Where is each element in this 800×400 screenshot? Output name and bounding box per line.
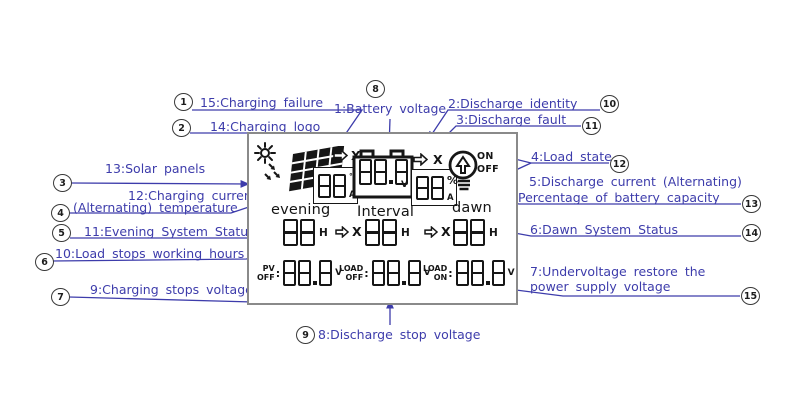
label-load-state: 4:Load state [531, 149, 612, 164]
interval-hours-unit: H [401, 227, 410, 239]
discharge-arrow-icon [413, 153, 428, 166]
label-discharge-identity: 2:Discharge identity [448, 96, 577, 111]
evening-title: evening [271, 202, 330, 218]
discharge-display-digits [415, 176, 445, 200]
label-undervoltage-2: power supply voltage [530, 279, 670, 294]
callout-circle-9: 9 [296, 326, 315, 344]
diagram-canvas: 1 2 3 4 5 6 7 8 9 10 11 12 13 14 15 15:C… [0, 0, 800, 400]
label-load-stops-hours: 10:Load stops working hours [55, 246, 244, 261]
label-battery-voltage: 1:Battery voltage [334, 101, 446, 116]
evening-hours-group: H [282, 219, 328, 246]
callout-circle-7: 7 [51, 288, 70, 306]
lcd-panel: °C A X V X % [247, 132, 518, 305]
label-solar-panels: 13:Solar panels [105, 161, 205, 176]
dawn-title: dawn [452, 200, 492, 216]
callout-circle-6: 6 [35, 253, 54, 271]
dawn-hours-unit: H [489, 227, 498, 239]
load-label-2: LOAD [423, 264, 447, 273]
load-on-text: ON [477, 151, 499, 164]
interval-hours-group: H [364, 219, 410, 246]
label-discharge-stop-voltage: 8:Discharge stop voltage [318, 327, 480, 342]
battery-volt-unit: V [401, 180, 408, 190]
label-charging-failure: 15:Charging failure [200, 95, 323, 110]
pv-off-voltage-digits [282, 260, 333, 286]
load-state-indicator: ON OFF [477, 151, 499, 177]
callout-circle-4: 4 [51, 204, 70, 222]
load-on-label: ON [423, 273, 447, 282]
callout-circle-12: 12 [610, 155, 629, 173]
colon: : [364, 267, 368, 280]
label-evening-status: 11:Evening System Status [84, 224, 255, 239]
leader-solar-panels [71, 183, 249, 184]
label-discharge-current-1: 5:Discharge current (Alternating) [529, 174, 742, 189]
colon: : [448, 267, 452, 280]
charge-display-digits [317, 174, 347, 198]
label-charging-stops-voltage: 9:Charging stops voltage [90, 282, 253, 297]
load-on-voltage-group: LOAD ON : V [423, 260, 515, 286]
load-bulb-icon [446, 149, 480, 195]
interval-indicator: X [335, 224, 362, 239]
interval-x-icon: X [352, 224, 362, 239]
dawn-arrow-icon [424, 226, 438, 238]
load-on-volt-unit: V [508, 268, 515, 278]
callout-circle-10: 10 [600, 95, 619, 113]
interval-hours-digits [364, 219, 398, 246]
discharge-indicator: X [413, 152, 443, 167]
callout-circle-15: 15 [741, 287, 760, 305]
pv-off-voltage-group: PV OFF : V [257, 260, 342, 286]
load-off-voltage-group: LOAD OFF : V [339, 260, 431, 286]
dawn-indicator: X [424, 224, 451, 239]
callout-circle-14: 14 [742, 224, 761, 242]
callout-circle-11: 11 [582, 117, 601, 135]
load-off-text: OFF [477, 164, 499, 177]
dawn-hours-group: H [452, 219, 498, 246]
pv-off-label: OFF [257, 273, 275, 282]
discharge-fault-x-icon: X [433, 152, 443, 167]
load-on-voltage-digits [455, 260, 506, 286]
load-off-voltage-digits [371, 260, 422, 286]
dawn-hours-digits [452, 219, 486, 246]
callout-circle-1: 1 [174, 93, 193, 111]
callout-circle-3: 3 [53, 174, 72, 192]
dawn-x-icon: X [441, 224, 451, 239]
label-dawn-status: 6:Dawn System Status [530, 222, 678, 237]
callout-circle-5: 5 [52, 224, 71, 242]
load-label: LOAD [339, 264, 363, 273]
evening-hours-unit: H [319, 227, 328, 239]
colon: : [276, 267, 280, 280]
callout-circle-8: 8 [366, 80, 385, 98]
label-discharge-current-2: Percentage of battery capacity [518, 190, 720, 205]
evening-hours-digits [282, 219, 316, 246]
callout-circle-2: 2 [172, 119, 191, 137]
charge-arrow-icon [333, 149, 348, 162]
label-charging-current-2: (Alternating) temperature [73, 200, 238, 215]
pv-label: PV [257, 264, 275, 273]
callout-circle-13: 13 [742, 195, 761, 213]
label-undervoltage-1: 7:Undervoltage restore the [530, 264, 705, 279]
interval-arrow-icon [335, 226, 349, 238]
interval-title: Interval [357, 204, 414, 220]
label-discharge-fault: 3:Discharge fault [456, 112, 566, 127]
load-off-label: OFF [339, 273, 363, 282]
